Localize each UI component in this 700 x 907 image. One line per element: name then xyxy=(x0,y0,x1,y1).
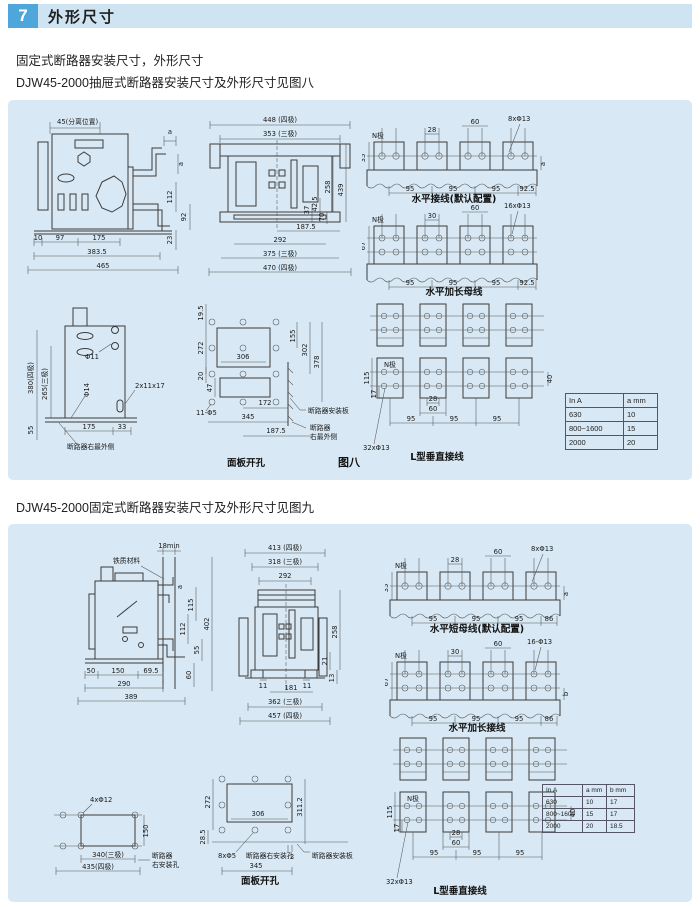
dim-label: 28.5 xyxy=(200,829,207,844)
breaker-side-outline xyxy=(85,557,185,689)
dim-label: 413 (四极) xyxy=(268,543,302,552)
dimension-lines xyxy=(78,547,212,705)
table-cell: In A xyxy=(543,785,583,797)
fig8-extended-busbar-diagram: N极 30 60 16xΦ13 67 95 95 95 92.5 水平加长母线 xyxy=(362,200,547,296)
dim-label: 70 xyxy=(318,213,326,222)
dim-label: 92 xyxy=(180,213,188,222)
dim-label: 55 xyxy=(193,646,201,655)
cutout-outline xyxy=(217,328,288,426)
dim-label: 112 xyxy=(179,623,187,636)
table-row: 800~160015 xyxy=(566,422,658,436)
dim-label: 40 xyxy=(546,375,554,384)
dim-label: 11-Φ5 xyxy=(196,409,217,417)
note-label: 铁质材料 xyxy=(113,556,140,565)
dim-label: 11 xyxy=(303,682,312,690)
dim-label: 258 xyxy=(324,181,332,194)
table-cell: b mm xyxy=(607,785,635,797)
dim-label: 16xΦ13 xyxy=(504,202,531,210)
fig9-front-view-diagram: 413 (四极) 318 (三极) 292 258 21 13 11 11 18… xyxy=(215,540,380,740)
dim-label: 28 xyxy=(452,829,461,837)
dim-label: 23 xyxy=(166,236,174,245)
dim-label: N极 xyxy=(384,360,396,369)
fig8-panel-cutout-diagram: 19.5 272 20 47 155 302 378 306 172 345 1… xyxy=(196,298,371,473)
dim-label: 448 (四极) xyxy=(263,115,297,124)
dim-label: 95 xyxy=(516,849,525,857)
dim-label: 290 xyxy=(118,680,131,688)
dim-label: 470 (四极) xyxy=(263,263,297,272)
diagram-caption: 水平加长母线 xyxy=(425,286,483,296)
busbar-blocks xyxy=(390,662,560,716)
busbar-blocks xyxy=(367,226,537,280)
table-cell: 630 xyxy=(566,408,624,422)
dim-label: 35 xyxy=(385,584,390,593)
intro-line-2: DJW45-2000抽屉式断路器安装尺寸及外形尺寸见图八 xyxy=(16,72,314,91)
dim-label: 11 xyxy=(259,682,268,690)
note-label: 断路器安装板 xyxy=(308,406,349,415)
dim-label: 115 xyxy=(187,599,195,612)
section-title: 外形尺寸 xyxy=(48,6,116,27)
dim-label: 19.5 xyxy=(197,305,205,320)
dim-label: 272 xyxy=(197,342,205,355)
dim-label: 115 xyxy=(386,806,394,819)
dim-label: N极 xyxy=(372,215,384,224)
dim-label: 28 xyxy=(451,556,460,564)
section-title-bar: 外形尺寸 xyxy=(38,4,692,28)
dim-label: 10 xyxy=(34,234,43,242)
dim-label: 340(三极) xyxy=(92,850,124,859)
dim-label: 402 xyxy=(203,618,211,631)
dim-label: 32xΦ13 xyxy=(386,878,413,886)
busbar-blocks xyxy=(377,304,532,398)
note-label: 右安装孔 xyxy=(152,860,179,869)
dim-label: 383.5 xyxy=(87,248,106,256)
dim-label: 18min xyxy=(158,542,179,550)
dim-label: 302 xyxy=(301,344,309,357)
figure8-panel: 45(分离位置) a a 112 92 23 10 97 175 383.5 4… xyxy=(8,100,692,480)
dim-label: 60 xyxy=(494,640,503,648)
dim-label: 311.2 xyxy=(296,797,304,816)
dim-label: 55 xyxy=(27,426,35,435)
dim-label: 37 xyxy=(303,206,311,215)
cutout-details xyxy=(208,776,348,875)
dim-label: 60 xyxy=(494,548,503,556)
dim-label: a xyxy=(177,162,185,166)
note-label: 断路器安装板 xyxy=(312,851,353,860)
dim-label: 95 xyxy=(492,279,501,287)
fig8-side-view-diagram: 45(分离位置) a a 112 92 23 10 97 175 383.5 4… xyxy=(20,112,205,302)
busbar-blocks xyxy=(390,572,560,616)
dim-label: 150 xyxy=(142,825,150,838)
table-cell: 630 xyxy=(543,797,583,809)
dim-label: 95 xyxy=(493,415,502,423)
fig8-spec-table: In Aa mm 63010 800~160015 200020 xyxy=(565,393,658,450)
cutout-details xyxy=(206,304,322,436)
table-cell: In A xyxy=(566,394,624,408)
table-cell: 15 xyxy=(583,809,607,821)
dim-label: 50 xyxy=(87,667,96,675)
dim-label: 16-Φ13 xyxy=(527,638,552,646)
dim-label: 4xΦ12 xyxy=(90,796,112,804)
breaker-side-outline xyxy=(34,134,172,234)
note-label: 右最外侧 xyxy=(310,432,337,441)
dim-label: 95 xyxy=(449,279,458,287)
dim-label: 97 xyxy=(56,234,65,242)
dim-label: 95 xyxy=(406,279,415,287)
table-row: 20002018.5 xyxy=(543,821,635,833)
table-cell: 17 xyxy=(607,797,635,809)
dim-label: 306 xyxy=(252,810,265,818)
dim-label: N极 xyxy=(395,561,407,570)
dim-label: 42.5 xyxy=(311,196,319,211)
dim-label: 95 xyxy=(407,415,416,423)
dim-label: 60 xyxy=(471,204,480,212)
dim-label: 95 xyxy=(515,715,524,723)
table-cell: a mm xyxy=(583,785,607,797)
dim-label: 8xΦ13 xyxy=(508,115,530,123)
table-row: 200020 xyxy=(566,436,658,450)
diagram-caption: L型垂直接线 xyxy=(410,451,464,463)
dim-label: 380(四极) xyxy=(26,362,35,394)
diagram-caption: 面板开孔 xyxy=(227,457,266,469)
figure9-panel: 18min 铁质材料 a 115 402 112 55 60 50 150 69… xyxy=(8,524,692,902)
dim-label: 17 xyxy=(370,390,378,399)
dim-label: 345 xyxy=(242,413,255,421)
note-label: 断路器 xyxy=(310,423,331,432)
dim-label: 112 xyxy=(166,191,174,204)
dim-label: b xyxy=(562,692,570,696)
dim-label: 378 xyxy=(313,356,321,369)
fig9-spec-table: In Aa mmb mm 6301017 800~16001517 200020… xyxy=(542,784,635,833)
dim-label: 35 xyxy=(362,154,367,163)
fig8-l-vertical-wiring-diagram: N极 115 17 40 32xΦ13 28 60 95 95 95 L型垂直接… xyxy=(362,298,557,468)
dim-label: 292 xyxy=(274,236,287,244)
table-row: 800~16001517 xyxy=(543,809,635,821)
dim-label: 95 xyxy=(449,185,458,193)
dim-label: 60 xyxy=(452,839,461,847)
dim-label: N极 xyxy=(372,131,384,140)
table-cell: 10 xyxy=(583,797,607,809)
dim-label: 95 xyxy=(430,849,439,857)
dim-label: 375 (三极) xyxy=(263,249,297,258)
dim-label: 60 xyxy=(185,671,193,680)
dim-label: 362 (三极) xyxy=(268,697,302,706)
dim-label: 2 xyxy=(290,853,294,861)
table-cell: 800~1600 xyxy=(543,809,583,821)
dim-label: 28 xyxy=(428,126,437,134)
dim-label: 92.5 xyxy=(519,279,534,287)
dim-label: 45(分离位置) xyxy=(57,117,98,126)
fig9-horizontal-short-busbar-diagram: N极 28 60 8xΦ13 35 a 95 95 95 86 水平短母线(默认… xyxy=(385,542,570,634)
dim-label: 181 xyxy=(285,684,298,692)
table-cell: 15 xyxy=(624,422,658,436)
dim-label: 67 xyxy=(362,242,367,251)
busbar-blocks xyxy=(400,738,555,832)
dim-label: 258 xyxy=(331,626,339,639)
dim-label: 175 xyxy=(83,423,96,431)
dim-label: 439 xyxy=(337,184,345,197)
dim-label: 28 xyxy=(429,395,438,403)
table-cell: 2000 xyxy=(566,436,624,450)
dim-label: 345 xyxy=(250,862,263,870)
dim-label: 95 xyxy=(429,715,438,723)
dim-label: 457 (四极) xyxy=(268,711,302,720)
table-row: 63010 xyxy=(566,408,658,422)
note-label: 断路器右最外侧 xyxy=(67,442,115,451)
dim-label: N极 xyxy=(395,651,407,660)
dim-label: 95 xyxy=(515,615,524,623)
figure8-caption: 图八 xyxy=(338,456,361,469)
dim-label: 353 (三极) xyxy=(263,129,297,138)
note-label: 断路器右安装孔 xyxy=(246,851,294,860)
dim-label: 175 xyxy=(93,234,106,242)
table-cell: 2000 xyxy=(543,821,583,833)
table-row: 6301017 xyxy=(543,797,635,809)
section-header: 7 外形尺寸 xyxy=(8,4,692,28)
table-cell: 18.5 xyxy=(607,821,635,833)
breaker-front-outline xyxy=(239,590,327,678)
dim-label: 150 xyxy=(112,667,125,675)
diagram-caption: 水平加长接线 xyxy=(448,722,506,732)
busbar-details xyxy=(370,313,548,444)
note-label: 断路器 xyxy=(152,851,173,860)
diagram-caption: 面板开孔 xyxy=(241,875,280,887)
table-cell: 17 xyxy=(607,809,635,821)
dim-label: 292 xyxy=(279,572,292,580)
dim-label: a xyxy=(176,585,184,589)
table-cell: 800~1600 xyxy=(566,422,624,436)
intro-line-1: 固定式断路器安装尺寸，外形尺寸 xyxy=(16,50,204,69)
dim-label: 86 xyxy=(545,715,554,723)
dim-label: Φ11 xyxy=(85,353,99,361)
mount-rect xyxy=(81,815,135,846)
dim-label: 67 xyxy=(385,678,390,687)
dim-label: 8xΦ13 xyxy=(531,545,553,553)
dim-label: 69.5 xyxy=(143,667,158,675)
diagram-caption: 水平短母线(默认配置) xyxy=(430,623,524,634)
dim-label: 95 xyxy=(472,615,481,623)
section-number: 7 xyxy=(8,4,38,28)
mount-plate-outline xyxy=(45,308,137,422)
fig8-mounting-side-diagram: 380(四极) 265(三极) 55 Φ11 Φ14 2x11x17 175 3… xyxy=(25,300,210,455)
dim-label: 95 xyxy=(472,715,481,723)
dim-label: 265(三极) xyxy=(40,368,49,400)
dim-label: 95 xyxy=(450,415,459,423)
dim-label: 20 xyxy=(197,372,205,381)
dim-label: 60 xyxy=(471,118,480,126)
dim-label: 95 xyxy=(473,849,482,857)
dim-label: 8xΦ5 xyxy=(218,852,236,860)
dim-label: 187.5 xyxy=(266,427,285,435)
table-header-row: In Aa mmb mm xyxy=(543,785,635,797)
dim-label: 13 xyxy=(328,674,336,683)
fig9-panel-cutout-diagram: 272 306 28.5 311.2 8xΦ5 断路器右安装孔 2 断路器安装板… xyxy=(200,752,375,887)
mid-line: DJW45-2000固定式断路器安装尺寸及外形尺寸见图九 xyxy=(16,497,314,516)
dim-label: 2x11x17 xyxy=(135,382,165,390)
dim-label: 21 xyxy=(321,657,329,666)
table-cell: 20 xyxy=(624,436,658,450)
dim-label: Φ14 xyxy=(83,383,91,397)
fig9-extended-wiring-diagram: N极 30 60 16-Φ13 67 b 95 95 95 86 水平加长接线 xyxy=(385,636,570,732)
dim-label: 30 xyxy=(428,212,437,220)
busbar-blocks xyxy=(367,142,537,186)
fig9-side-view-diagram: 18min 铁质材料 a 115 402 112 55 60 50 150 69… xyxy=(45,539,230,729)
dim-label: 17 xyxy=(393,824,401,833)
dim-label: 47 xyxy=(206,384,214,393)
fig9-mounting-holes-diagram: 4xΦ12 150 340(三极) 435(四极) 断路器 右安装孔 xyxy=(40,786,215,896)
dim-label: 95 xyxy=(406,185,415,193)
fig8-horizontal-wiring-diagram: N极 28 60 8xΦ13 35 a 95 95 95 92.5 水平接线(默… xyxy=(362,112,547,204)
dim-label: 435(四极) xyxy=(82,862,114,871)
dim-label: 95 xyxy=(429,615,438,623)
dim-label: 86 xyxy=(545,615,554,623)
table-cell: 10 xyxy=(624,408,658,422)
dim-label: 465 xyxy=(97,262,110,270)
fig8-front-view-diagram: 448 (四极) 353 (三极) 258 439 37 42.5 70 187… xyxy=(200,112,360,282)
dim-label: 60 xyxy=(429,405,438,413)
dim-label: a xyxy=(168,128,172,136)
table-header-row: In Aa mm xyxy=(566,394,658,408)
dim-label: 172 xyxy=(259,399,272,407)
dim-label: 33 xyxy=(118,423,127,431)
dim-label: 389 xyxy=(125,693,138,701)
dim-label: 187.5 xyxy=(296,223,315,231)
dim-label: 318 (三极) xyxy=(268,557,302,566)
diagram-caption: L型垂直接线 xyxy=(433,885,487,897)
dim-label: 92.5 xyxy=(519,185,534,193)
dim-label: 272 xyxy=(204,796,212,809)
dim-label: 306 xyxy=(237,353,250,361)
table-cell: 20 xyxy=(583,821,607,833)
table-cell: a mm xyxy=(624,394,658,408)
dim-label: 95 xyxy=(492,185,501,193)
dim-label: a xyxy=(562,592,570,596)
dim-label: a xyxy=(539,162,547,166)
dim-label: N极 xyxy=(407,794,419,803)
dim-label: 30 xyxy=(451,648,460,656)
dim-label: 155 xyxy=(289,330,297,343)
